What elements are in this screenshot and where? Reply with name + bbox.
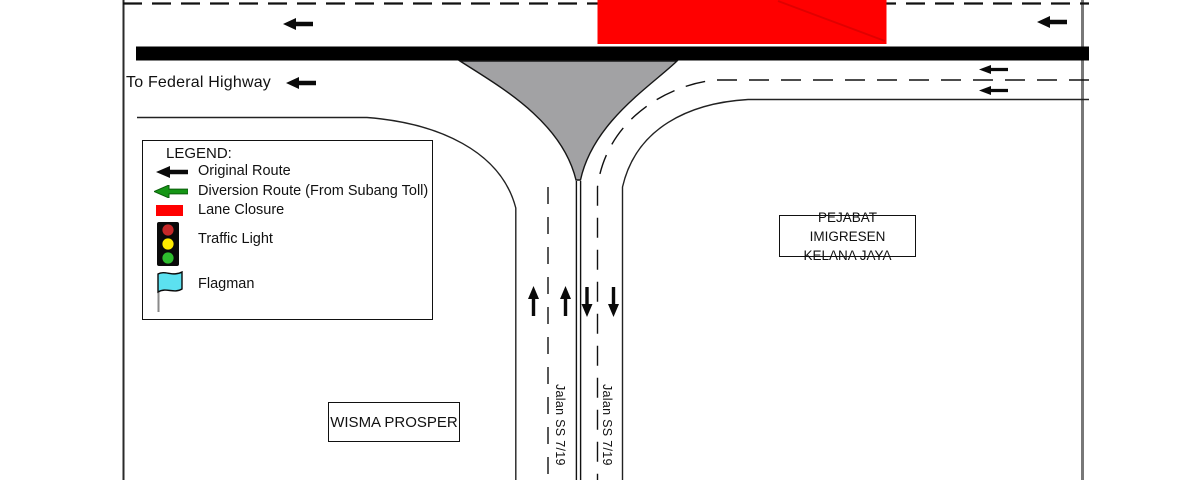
southbound-lane2-arrow-icon — [608, 287, 619, 317]
westbound-lane2-arrow-icon — [979, 86, 1008, 95]
lane-closure-area — [598, 0, 887, 44]
westbound-arrow-top-right-icon — [1037, 16, 1067, 28]
gore-island — [460, 61, 677, 180]
to-federal-highway-arrow-icon — [286, 77, 316, 89]
right-road-edge — [623, 100, 1090, 480]
pejabat-imigresen-line1: PEJABAT IMIGRESEN — [780, 208, 915, 246]
pejabat-imigresen-line2: KELANA JAYA — [803, 246, 891, 265]
red-rect-icon — [156, 205, 183, 216]
southbound-lane1-arrow-icon — [582, 287, 593, 317]
legend-item-lane-closure: Lane Closure — [198, 202, 284, 218]
wisma-prosper-label: WISMA PROSPER — [330, 414, 458, 431]
westbound-lane1-arrow-icon — [979, 65, 1008, 74]
legend-box: LEGEND: Original Route Diversion Route (… — [142, 140, 433, 320]
wisma-prosper-box: WISMA PROSPER — [328, 402, 460, 442]
pejabat-imigresen-box: PEJABAT IMIGRESEN KELANA JAYA — [779, 215, 916, 257]
legend-item-flagman: Flagman — [198, 276, 254, 292]
diversion-plan-diagram: To Federal Highway LEGEND: Original Rout… — [0, 0, 1200, 480]
green-arrow-icon — [154, 185, 188, 198]
legend-item-traffic-light: Traffic Light — [198, 231, 273, 247]
legend-item-original-route: Original Route — [198, 163, 291, 179]
median-divider-bar — [136, 47, 1089, 61]
legend-item-diversion-route: Diversion Route (From Subang Toll) — [198, 183, 428, 199]
flagman-flag-icon — [156, 271, 184, 313]
jalan-ss719-label-right: Jalan SS 7/19 — [599, 384, 614, 470]
legend-title: LEGEND: — [166, 145, 232, 162]
traffic-light-icon — [157, 222, 179, 266]
black-arrow-icon — [156, 166, 188, 178]
right-dashed-lane-line — [598, 80, 1090, 480]
jalan-ss719-label-left: Jalan SS 7/19 — [552, 384, 567, 464]
northbound-lane1-arrow-icon — [528, 286, 539, 316]
northbound-lane2-arrow-icon — [560, 286, 571, 316]
to-federal-highway-label: To Federal Highway — [126, 74, 271, 92]
westbound-arrow-top-left-icon — [283, 18, 313, 30]
